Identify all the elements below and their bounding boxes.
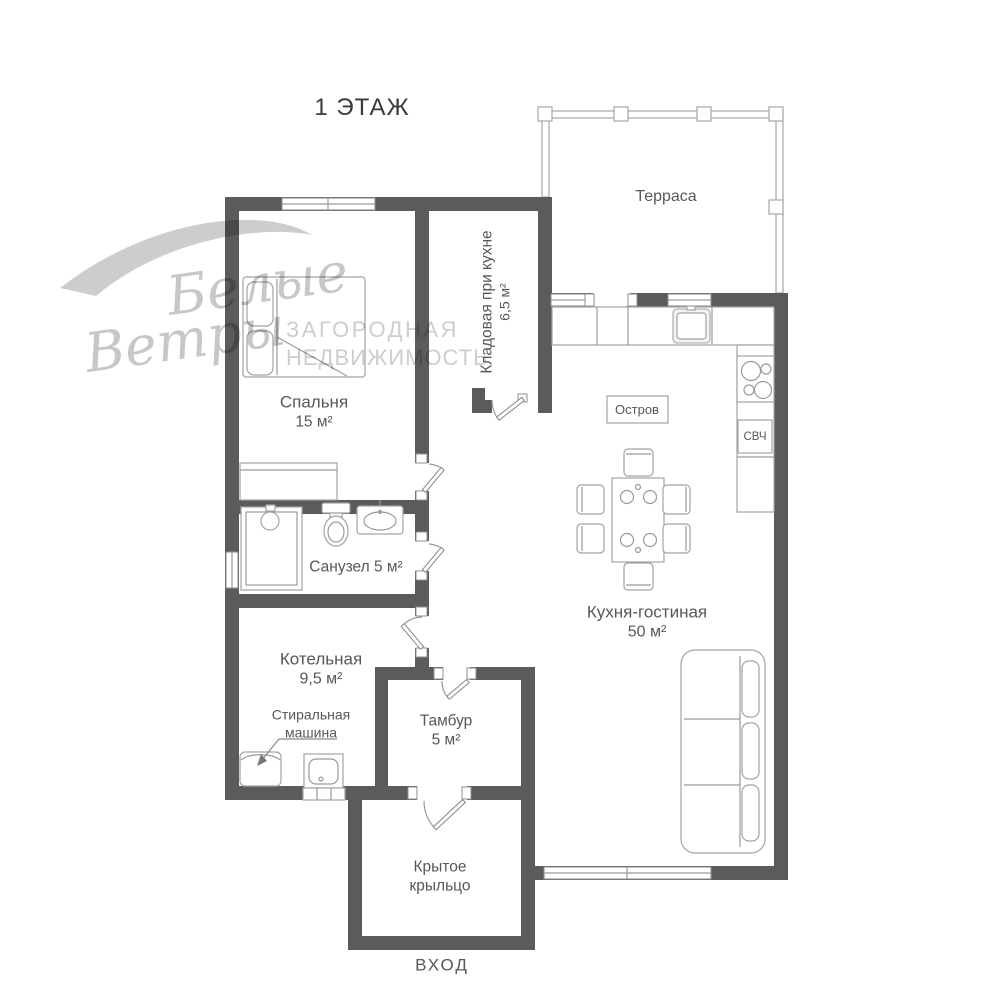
chair: [577, 485, 604, 514]
floor-plan: Белые Ветры ЗАГОРОДНАЯ НЕДВИЖИМОСТЬ 1 ЭТ…: [0, 0, 1000, 1000]
label-washing-machine: Стиральная машина: [272, 707, 350, 742]
label-island: Остров: [615, 402, 659, 418]
chair: [663, 485, 690, 514]
floor-plan-drawing: Белые Ветры ЗАГОРОДНАЯ НЕДВИЖИМОСТЬ: [0, 0, 1000, 1000]
room-label-pantry: Кладовая при кухне 6,5 м²: [478, 230, 515, 373]
chair: [577, 524, 604, 553]
room-label-terrace: Терраса: [635, 187, 696, 207]
sofa: [681, 650, 765, 853]
watermark-caps-1: ЗАГОРОДНАЯ: [286, 317, 459, 342]
washing-machine: [303, 754, 345, 800]
floor-title: 1 ЭТАЖ: [314, 93, 409, 123]
window: [544, 867, 711, 879]
window: [282, 198, 375, 210]
room-label-porch: Крытое крыльцо: [410, 858, 471, 897]
kitchen-sink: [673, 306, 710, 343]
room-label-bedroom: Спальня 15 м²: [280, 392, 348, 433]
door-bathroom: [416, 532, 444, 580]
door-boiler: [401, 607, 427, 657]
room-label-bathroom: Санузел 5 м²: [309, 557, 402, 576]
room-label-vestibule: Тамбур 5 м²: [420, 712, 473, 751]
chair: [624, 563, 653, 590]
dining-table: [612, 478, 664, 562]
chair: [624, 449, 653, 476]
wardrobe: [240, 463, 337, 500]
room-label-kitchen-living: Кухня-гостиная 50 м²: [587, 601, 707, 642]
door-pantry: [492, 394, 527, 420]
toilet: [322, 503, 350, 546]
door-vestibule: [434, 668, 476, 699]
stove: [737, 356, 774, 402]
window: [668, 294, 711, 306]
chair: [663, 524, 690, 553]
room-label-boiler: Котельная 9,5 м²: [280, 648, 362, 689]
watermark-caps-2: НЕДВИЖИМОСТЬ: [286, 345, 489, 370]
shower: [241, 505, 302, 590]
label-entrance: ВХОД: [415, 954, 469, 975]
window: [226, 552, 238, 588]
door-bedroom: [416, 454, 444, 500]
door-porch: [408, 787, 471, 830]
label-microwave: СВЧ: [743, 430, 766, 444]
